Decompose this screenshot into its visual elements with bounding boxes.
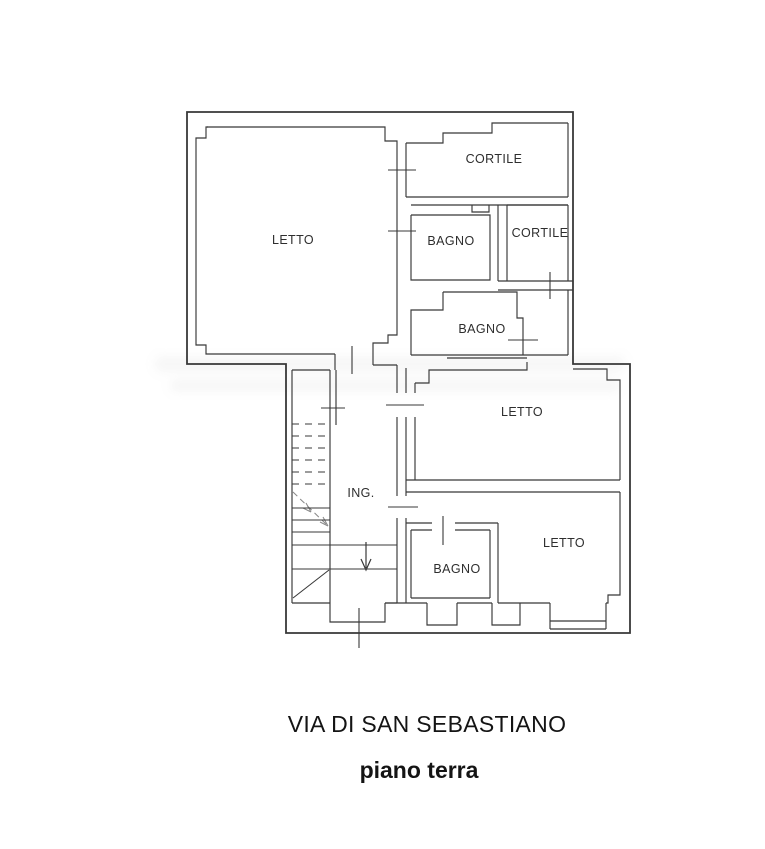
room-label-cortile-top: CORTILE	[466, 152, 523, 166]
floor-plan-page: LETTO CORTILE BAGNO CORTILE BAGNO LETTO …	[0, 0, 765, 849]
room-label-bagno-top: BAGNO	[427, 234, 474, 248]
room-label-cortile-right: CORTILE	[512, 226, 569, 240]
entrance-recess	[330, 603, 385, 622]
stair-upper-flight-treads	[292, 424, 325, 484]
stair-cut-diagonal	[293, 570, 329, 598]
room-label-ingresso: ING.	[347, 486, 374, 500]
room-label-letto-top-right: LETTO	[501, 405, 543, 419]
plan-subtitle: piano terra	[360, 757, 479, 784]
stair-direction-arrow	[361, 542, 371, 570]
bagno-bottom-letto-walls	[385, 492, 620, 629]
watermark-smudge	[155, 356, 625, 392]
plan-title: VIA DI SAN SEBASTIANO	[288, 711, 567, 738]
staircase	[292, 370, 397, 603]
outer-perimeter-wall	[187, 112, 630, 633]
room-label-letto-bottom-right: LETTO	[543, 536, 585, 550]
letto-main-walls	[196, 127, 397, 370]
stair-break-line	[293, 492, 328, 526]
ingresso-walls	[385, 365, 406, 603]
room-label-bagno-mid: BAGNO	[458, 322, 505, 336]
room-label-bagno-bottom: BAGNO	[433, 562, 480, 576]
cortile-bagno-top-walls	[406, 123, 573, 290]
room-label-letto-main: LETTO	[272, 233, 314, 247]
